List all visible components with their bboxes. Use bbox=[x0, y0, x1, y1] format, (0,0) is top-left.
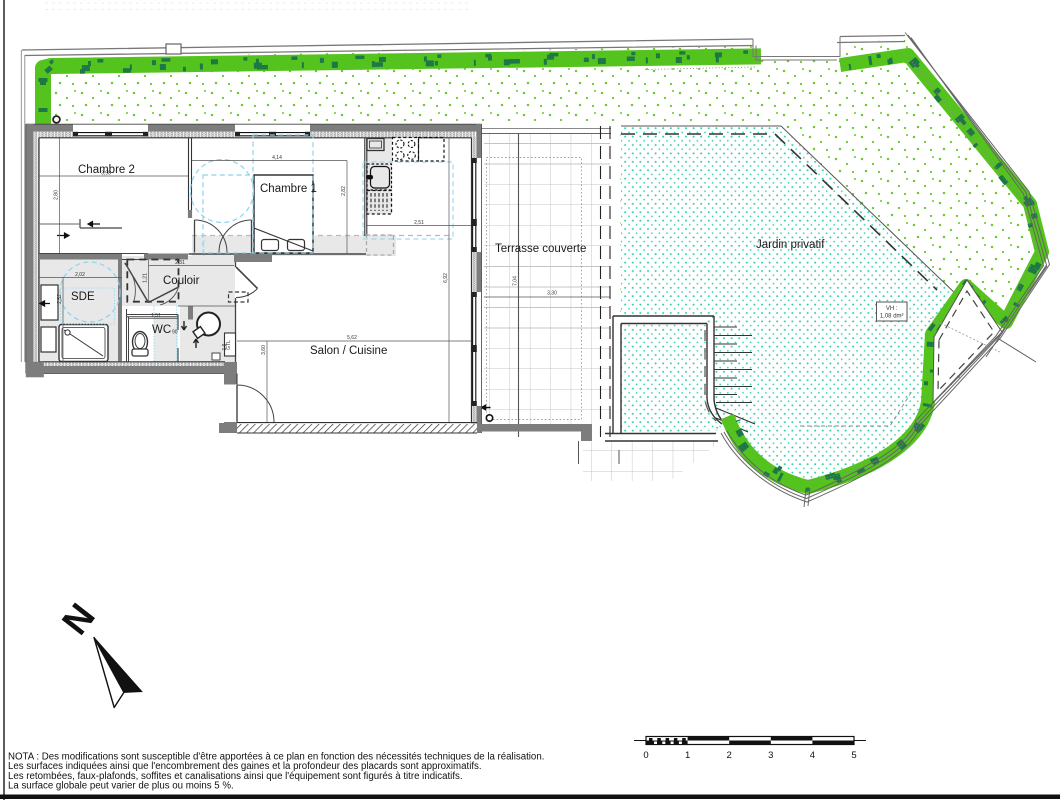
svg-text:1,21: 1,21 bbox=[143, 273, 149, 283]
svg-text:5: 5 bbox=[851, 750, 856, 761]
svg-text:3,30: 3,30 bbox=[547, 291, 557, 297]
svg-text:90: 90 bbox=[172, 330, 178, 336]
svg-text:2,80: 2,80 bbox=[54, 190, 60, 200]
svg-text:2,82: 2,82 bbox=[341, 186, 347, 196]
svg-text:2: 2 bbox=[727, 750, 732, 761]
svg-text:Couloir: Couloir bbox=[163, 275, 200, 287]
svg-text:Salon / Cuisine: Salon / Cuisine bbox=[310, 345, 387, 357]
svg-text:SDE: SDE bbox=[71, 291, 95, 303]
svg-text:Chambre 2: Chambre 2 bbox=[78, 164, 135, 176]
svg-text:Terrasse couverte: Terrasse couverte bbox=[495, 243, 586, 255]
svg-text:Chambre 1: Chambre 1 bbox=[260, 183, 317, 195]
svg-text:1,51: 1,51 bbox=[151, 313, 161, 319]
svg-text:La surface globale peut varier: La surface globale peut varier de plus o… bbox=[8, 781, 234, 792]
svg-text:1,08 dm²: 1,08 dm² bbox=[880, 314, 904, 320]
svg-text:1,9: 1,9 bbox=[222, 343, 228, 350]
svg-text:4: 4 bbox=[810, 750, 815, 761]
svg-text:1: 1 bbox=[685, 750, 690, 761]
svg-text:2,52: 2,52 bbox=[57, 294, 63, 304]
svg-text:2,31: 2,31 bbox=[175, 260, 185, 266]
svg-text:VH :: VH : bbox=[886, 306, 898, 312]
svg-text:5,62: 5,62 bbox=[347, 335, 357, 341]
svg-text:0: 0 bbox=[643, 750, 648, 761]
svg-text:7,04: 7,04 bbox=[513, 276, 519, 286]
svg-text:4,14: 4,14 bbox=[272, 155, 282, 161]
svg-text:2,51: 2,51 bbox=[414, 220, 424, 226]
svg-text:WC: WC bbox=[152, 324, 171, 336]
svg-text:3,60: 3,60 bbox=[261, 345, 267, 355]
svg-text:3: 3 bbox=[768, 750, 773, 761]
svg-text:2,02: 2,02 bbox=[75, 272, 85, 278]
svg-text:Jardin privatif: Jardin privatif bbox=[756, 239, 825, 251]
svg-text:6,92: 6,92 bbox=[443, 273, 449, 283]
